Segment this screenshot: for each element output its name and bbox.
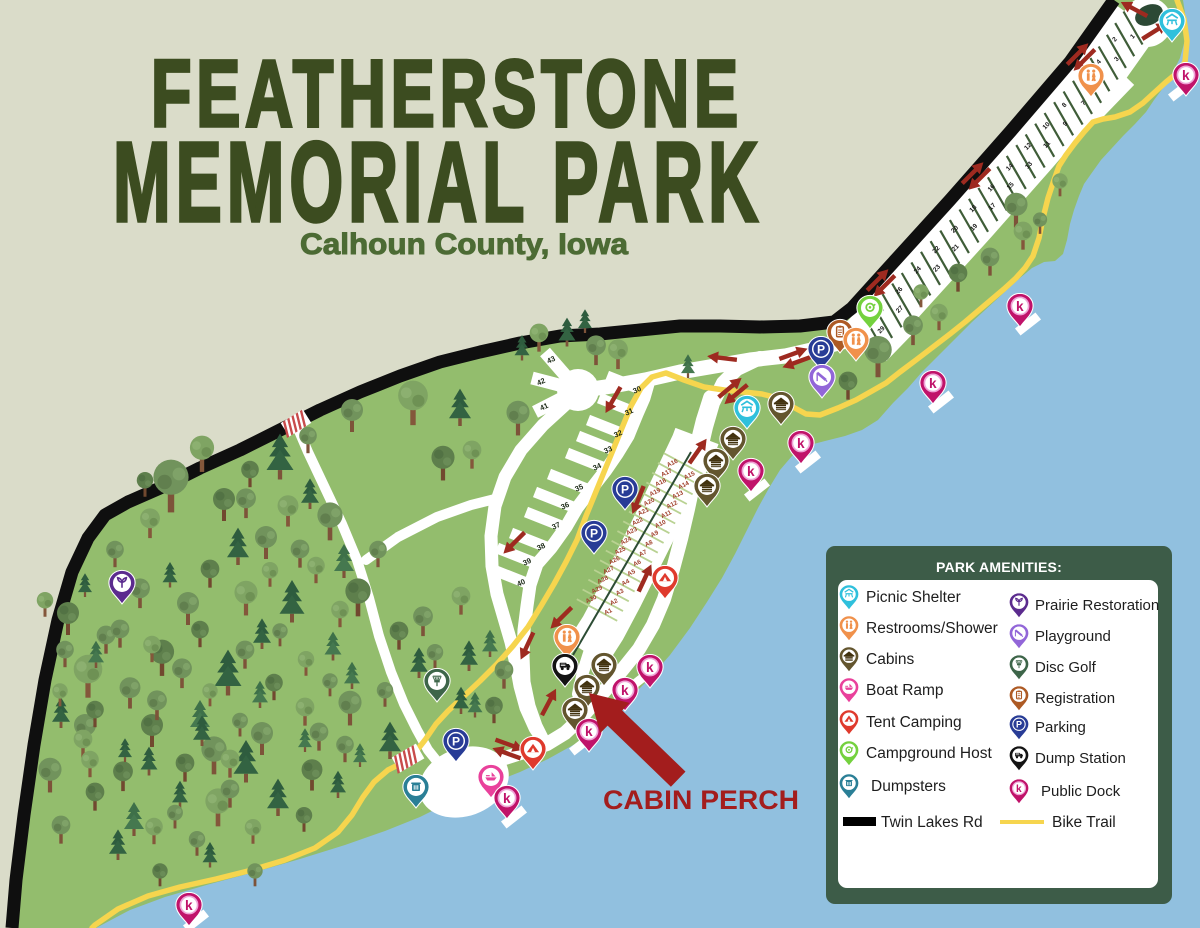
- svg-text:Bike Trail: Bike Trail: [1052, 814, 1116, 831]
- svg-text:Public Dock: Public Dock: [1041, 783, 1121, 800]
- svg-text:Playground: Playground: [1035, 628, 1111, 645]
- svg-text:Cabins: Cabins: [866, 651, 914, 668]
- svg-text:Registration: Registration: [1035, 690, 1115, 707]
- svg-text:CABIN PERCH: CABIN PERCH: [603, 785, 799, 815]
- svg-text:Tent Camping: Tent Camping: [866, 714, 962, 731]
- svg-text:Parking: Parking: [1035, 719, 1086, 736]
- svg-text:Twin Lakes Rd: Twin Lakes Rd: [881, 814, 983, 831]
- svg-text:Calhoun County, Iowa: Calhoun County, Iowa: [300, 228, 628, 261]
- svg-text:Campground Host: Campground Host: [866, 745, 992, 762]
- svg-text:PARK AMENITIES:: PARK AMENITIES:: [936, 559, 1062, 575]
- svg-text:Disc Golf: Disc Golf: [1035, 659, 1097, 676]
- svg-text:Boat Ramp: Boat Ramp: [866, 682, 944, 699]
- svg-text:Dumpsters: Dumpsters: [871, 778, 946, 795]
- svg-text:MEMORIAL PARK: MEMORIAL PARK: [113, 119, 763, 245]
- svg-text:Dump Station: Dump Station: [1035, 750, 1126, 767]
- svg-text:Picnic Shelter: Picnic Shelter: [866, 589, 961, 606]
- svg-text:Prairie Restoration: Prairie Restoration: [1035, 597, 1159, 614]
- svg-text:Restrooms/Shower: Restrooms/Shower: [866, 620, 998, 637]
